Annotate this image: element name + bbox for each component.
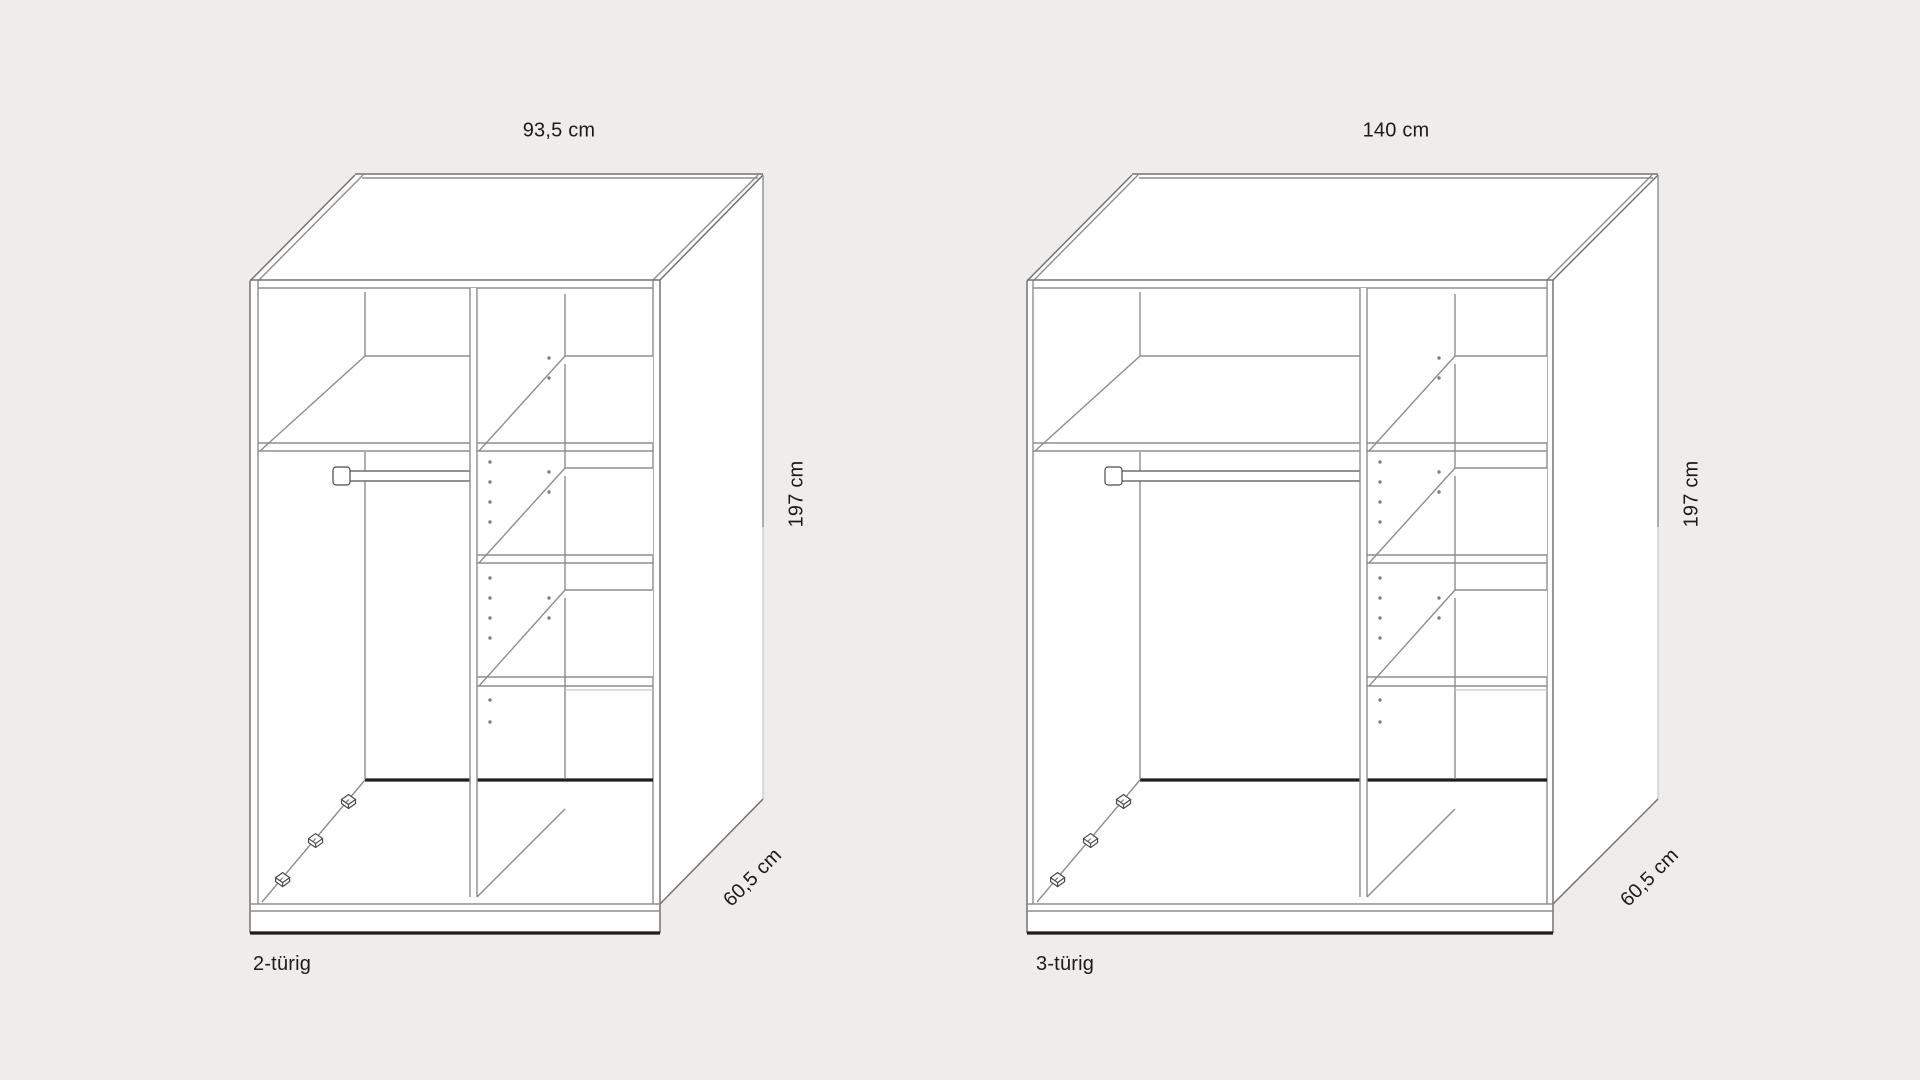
wardrobe-3tuerig-variant-label: 3-türig <box>1036 953 1094 976</box>
wardrobe-3tuerig-height-label: 197 cm <box>1681 461 1704 528</box>
wardrobe-2-door-drawing <box>250 174 763 933</box>
wardrobe-3tuerig-width-label: 140 cm <box>1363 120 1430 143</box>
wardrobe-dimension-diagram: 93,5 cm 197 cm 60,5 cm 2-türig 140 cm 19… <box>0 0 1920 1080</box>
wardrobe-2tuerig-variant-label: 2-türig <box>253 953 311 976</box>
wardrobe-3-door-drawing <box>1027 174 1658 933</box>
wardrobe-2tuerig-width-label: 93,5 cm <box>523 120 596 143</box>
wardrobes-line-drawing-svg <box>0 0 1920 1080</box>
wardrobe-2tuerig-height-label: 197 cm <box>786 461 809 528</box>
cabinet-faces <box>1027 175 1658 933</box>
